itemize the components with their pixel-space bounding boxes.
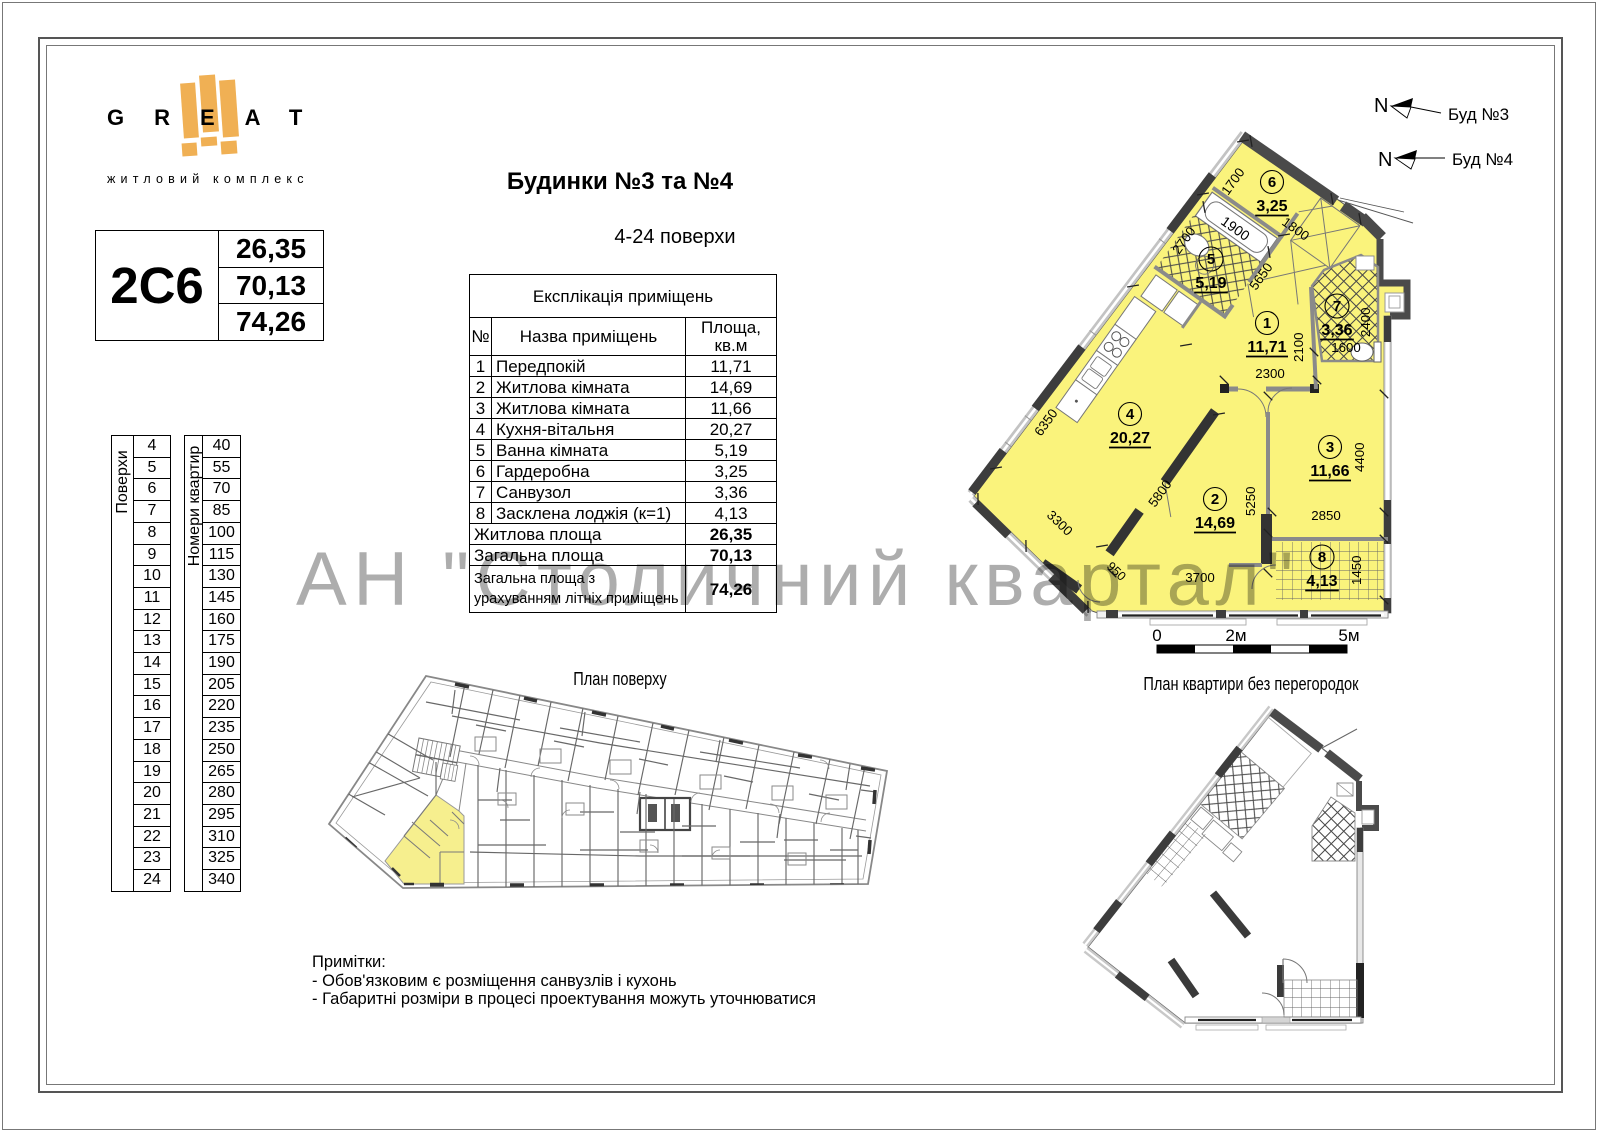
svg-text:3,36: 3,36 bbox=[1321, 322, 1352, 339]
svg-text:5,19: 5,19 bbox=[1195, 275, 1226, 292]
svg-text:3,25: 3,25 bbox=[1256, 198, 1287, 215]
svg-text:2100: 2100 bbox=[1291, 332, 1306, 362]
svg-text:20,27: 20,27 bbox=[1110, 430, 1150, 447]
svg-text:2850: 2850 bbox=[1311, 508, 1341, 523]
svg-text:N: N bbox=[1374, 95, 1388, 117]
svg-text:3: 3 bbox=[1326, 439, 1334, 456]
svg-text:Буд №3: Буд №3 bbox=[1448, 105, 1509, 124]
svg-text:4: 4 bbox=[1126, 406, 1135, 423]
svg-text:5250: 5250 bbox=[1243, 486, 1258, 516]
svg-text:11,71: 11,71 bbox=[1247, 339, 1286, 356]
svg-text:1: 1 bbox=[1263, 315, 1271, 332]
svg-text:2400: 2400 bbox=[1358, 307, 1373, 337]
svg-text:1450: 1450 bbox=[1349, 555, 1364, 585]
svg-text:0: 0 bbox=[1152, 626, 1161, 645]
svg-text:2м: 2м bbox=[1225, 626, 1246, 645]
svg-text:5: 5 bbox=[1207, 251, 1215, 268]
svg-text:1600: 1600 bbox=[1331, 340, 1361, 355]
svg-text:7: 7 bbox=[1333, 298, 1341, 315]
svg-text:8: 8 bbox=[1318, 549, 1326, 566]
svg-text:2300: 2300 bbox=[1255, 366, 1285, 381]
svg-text:N: N bbox=[1378, 149, 1392, 171]
svg-text:4400: 4400 bbox=[1352, 442, 1367, 472]
svg-text:14,69: 14,69 bbox=[1195, 515, 1235, 532]
svg-text:11,66: 11,66 bbox=[1310, 463, 1349, 480]
svg-text:Буд №4: Буд №4 bbox=[1452, 150, 1513, 169]
svg-text:5м: 5м bbox=[1338, 626, 1359, 645]
svg-text:4,13: 4,13 bbox=[1306, 573, 1337, 590]
svg-text:2: 2 bbox=[1211, 491, 1219, 508]
svg-text:6: 6 bbox=[1268, 174, 1276, 191]
